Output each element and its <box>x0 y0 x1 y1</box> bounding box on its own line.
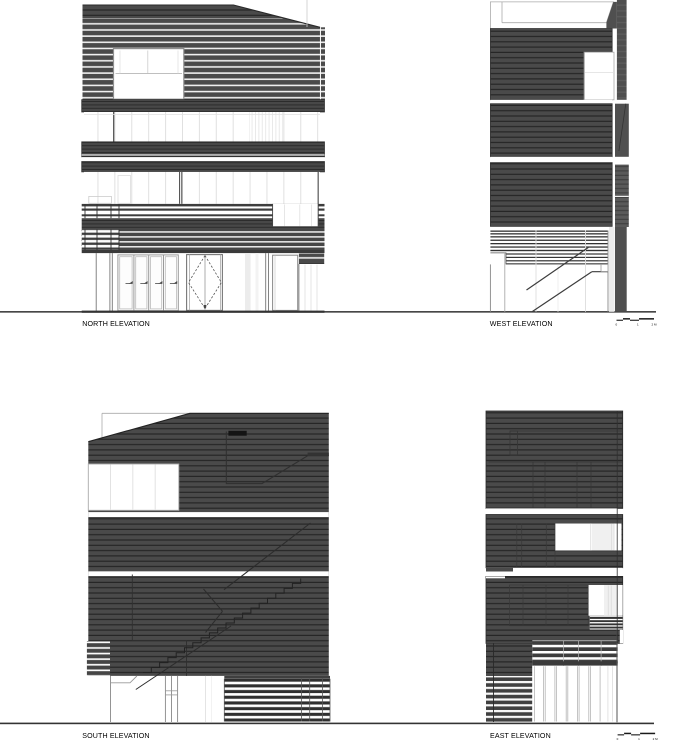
svg-text:2 M: 2 M <box>653 737 659 741</box>
svg-text:WEST ELEVATION: WEST ELEVATION <box>490 320 553 328</box>
svg-text:NORTH ELEVATION: NORTH ELEVATION <box>82 320 150 328</box>
svg-text:EAST ELEVATION: EAST ELEVATION <box>490 732 551 740</box>
svg-text:SOUTH ELEVATION: SOUTH ELEVATION <box>82 732 149 740</box>
svg-text:2 M: 2 M <box>652 322 658 326</box>
